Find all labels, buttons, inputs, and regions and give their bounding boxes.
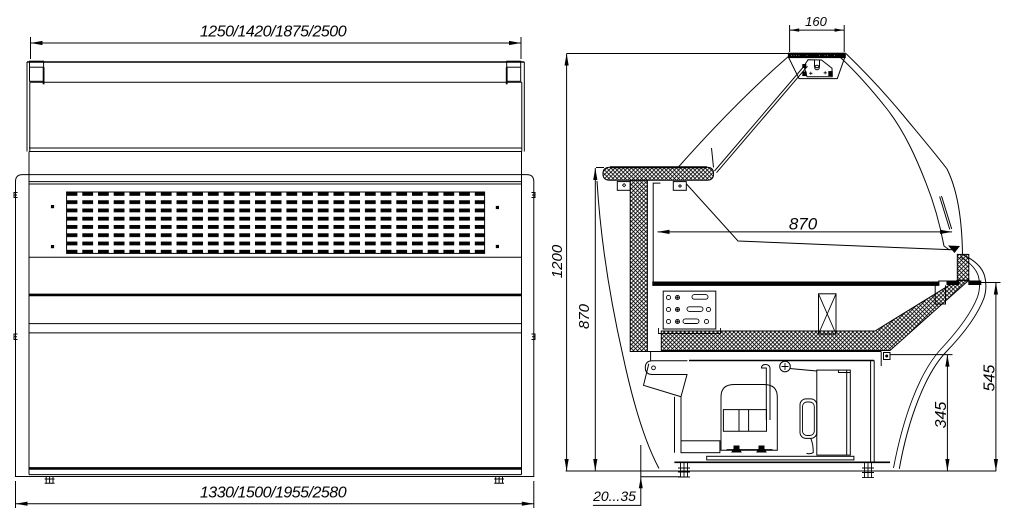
svg-text:545: 545 xyxy=(982,365,999,392)
svg-text:1330/1500/1955/2580: 1330/1500/1955/2580 xyxy=(200,485,347,502)
svg-text:1200: 1200 xyxy=(549,244,566,278)
svg-text:345: 345 xyxy=(933,402,950,429)
svg-text:870: 870 xyxy=(576,303,593,329)
svg-text:1250/1420/1875/2500: 1250/1420/1875/2500 xyxy=(200,24,347,41)
svg-text:20...35: 20...35 xyxy=(592,488,636,504)
svg-text:870: 870 xyxy=(789,215,818,234)
svg-text:160: 160 xyxy=(805,14,827,29)
